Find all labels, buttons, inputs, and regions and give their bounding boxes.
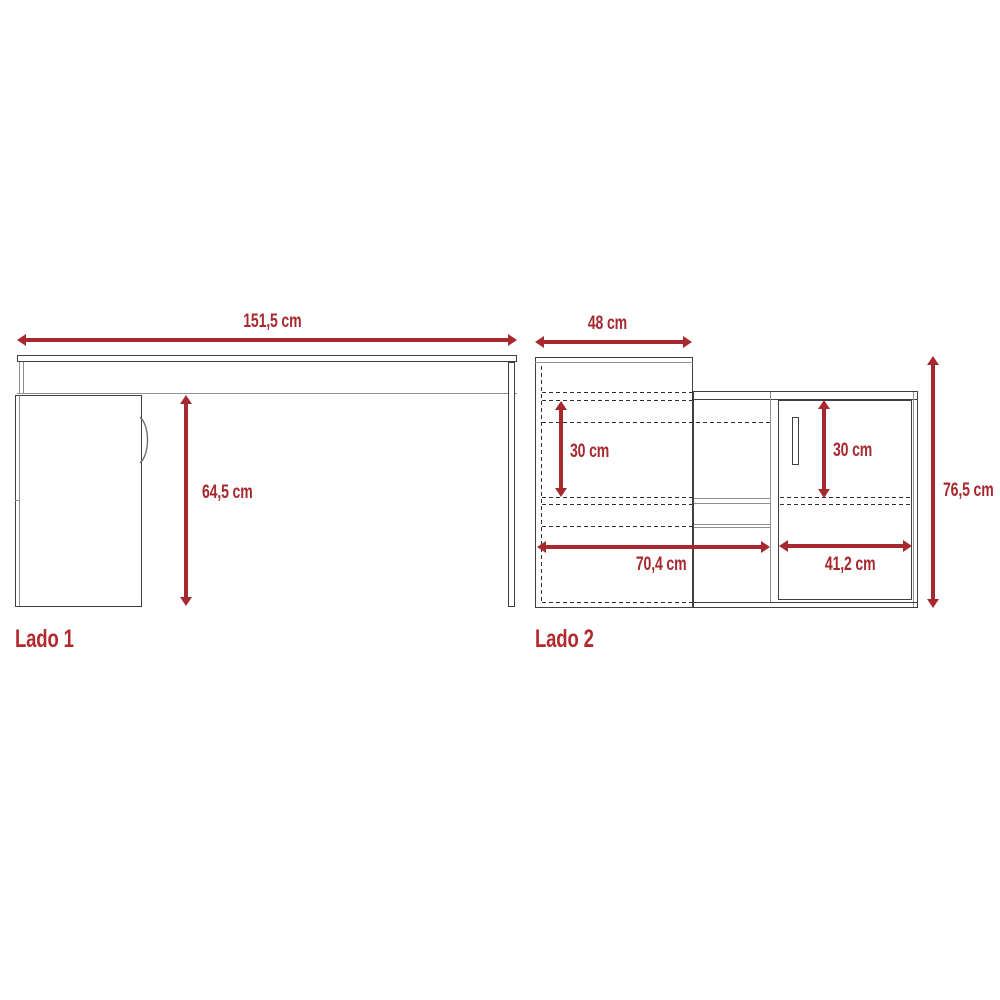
hidden-line-shelf-a — [542, 497, 692, 498]
dim-height-text: 64,5 cm — [202, 483, 253, 502]
dim-right-height-text: 30 cm — [833, 441, 872, 460]
dim-width-text: 151,5 cm — [243, 312, 301, 331]
desk-left-cabinet — [15, 395, 142, 607]
dim-depth-label: 48 cm — [507, 314, 707, 333]
side-label-lado1: Lado 1 — [15, 627, 94, 652]
shelf-line-d — [694, 527, 770, 528]
hidden-line-shelf-b — [542, 504, 692, 505]
dim-depth-text: 48 cm — [587, 314, 626, 333]
dim-total-height-arrow — [931, 364, 935, 600]
side-panel-top-inner-line — [535, 362, 693, 363]
hidden-line-bottom — [542, 602, 692, 603]
hidden-line-behind-door-b — [780, 504, 910, 505]
door-handle — [792, 417, 799, 465]
side-label-lado1-text: Lado 1 — [15, 627, 74, 652]
desk-top-panel — [17, 355, 517, 362]
cabinet-door-handle-arc — [139, 416, 153, 464]
dim-total-height-label: 76,5 cm — [943, 481, 1000, 500]
shelf-line-b — [694, 503, 770, 504]
dim-total-height-text: 76,5 cm — [943, 481, 994, 500]
side-label-lado2: Lado 2 — [535, 627, 614, 652]
dim-width-label: 151,5 cm — [172, 312, 372, 331]
hidden-line-behind-door-a — [780, 497, 910, 498]
hidden-line-shelf-c — [542, 526, 692, 527]
shelf-line-a — [694, 498, 770, 499]
dim-left-width-text: 70,4 cm — [636, 555, 687, 574]
desk-top-left-edge-inner — [23, 362, 24, 393]
dim-width-arrow — [25, 338, 509, 342]
dim-left-height-text: 30 cm — [570, 442, 609, 461]
dim-left-width-arrow — [545, 545, 762, 549]
dim-height-label: 64,5 cm — [202, 483, 270, 502]
shelf-line-c — [694, 524, 770, 525]
dim-depth-arrow — [543, 340, 684, 344]
dim-right-width-arrow — [787, 544, 904, 548]
dim-left-height-label: 30 cm — [570, 442, 623, 461]
cabinet-right-inner-line — [913, 392, 914, 607]
side-label-lado2-text: Lado 2 — [535, 627, 594, 652]
dim-right-width-text: 41,2 cm — [825, 555, 876, 574]
cabinet-edge-tick — [15, 500, 19, 501]
dim-right-width-label: 41,2 cm — [750, 555, 950, 574]
dimension-diagram: 151,5 cm 64,5 cm Lado 1 — [0, 0, 1000, 1000]
hidden-line-vertical — [541, 366, 542, 602]
dim-height-arrow — [184, 403, 188, 598]
dim-left-height-arrow — [559, 409, 563, 489]
desk-right-leg — [508, 362, 515, 607]
cabinet-bottom-inner-line — [694, 602, 917, 603]
dim-left-width-label: 70,4 cm — [561, 555, 761, 574]
dim-right-height-label: 30 cm — [833, 441, 886, 460]
desk-top-left-edge — [19, 362, 20, 393]
cabinet-left-inner-edge — [19, 396, 20, 606]
dim-right-height-arrow — [822, 408, 826, 490]
desk-apron-line — [17, 393, 517, 394]
hidden-line-cabinet-top-a — [542, 392, 692, 393]
